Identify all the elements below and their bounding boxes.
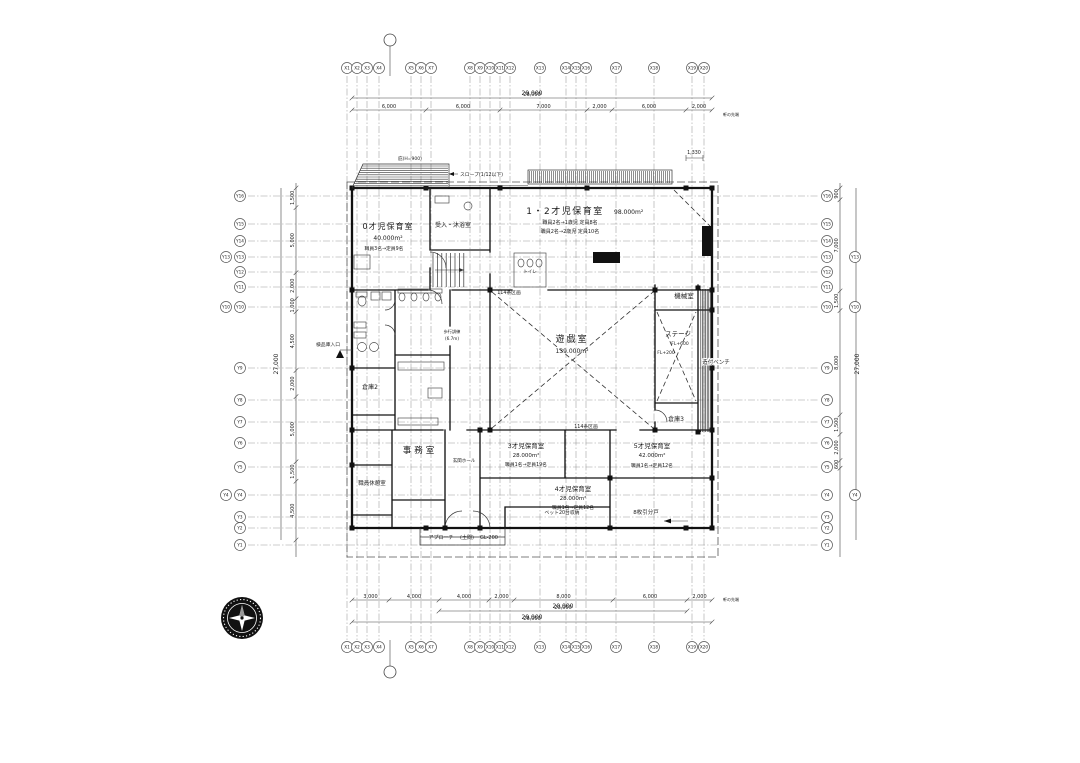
bath-counter: [435, 196, 449, 203]
interior-walls: [352, 188, 712, 528]
grid-bubble-label: Y8: [823, 398, 830, 403]
toilet: [358, 296, 366, 306]
column: [478, 526, 483, 531]
grid-bubble-label: Y14: [235, 239, 244, 244]
grid-bubble: X9: [475, 63, 486, 74]
grid-bubble: X6: [416, 63, 427, 74]
column: [488, 288, 493, 293]
grid-bubble-label: X16: [582, 66, 591, 71]
grid-bubble-label: X14: [562, 66, 571, 71]
grid-bubble: Y7: [822, 417, 833, 428]
grid-bubble-label: Y10: [235, 305, 244, 310]
grid-bubble-label: Y13: [235, 255, 244, 260]
grid-bubble-label: Y1: [823, 543, 830, 548]
grid-bubble-label: X18: [650, 645, 659, 650]
grid-bubble: Y13: [221, 252, 232, 263]
doma-label: (土間): [460, 534, 474, 541]
grid-bubble: X10: [485, 63, 496, 74]
grid-bubble-label: Y2: [236, 526, 243, 531]
grid-bubble: X5: [406, 63, 417, 74]
slide-door-arrow: [664, 519, 688, 524]
stair-arrow-head: [459, 268, 464, 272]
grid-bubble-label: Y3: [823, 515, 830, 520]
grid-bubble: Y2: [822, 523, 833, 534]
grid-bubble-label: Y10: [822, 305, 831, 310]
dim-text: 2,000: [494, 594, 508, 600]
grid-bubble: X20: [699, 63, 710, 74]
eaves-note-top: 軒の先端: [723, 111, 739, 117]
slope-arrow: [449, 172, 458, 176]
room-label-toilet: トイレ: [523, 270, 537, 275]
grid-bubble: X1: [342, 642, 353, 653]
fire-compartment-label-bottom: 114条区画: [574, 423, 598, 430]
grid-bubble: Y8: [235, 395, 246, 406]
room-area-nursery12: 98.000m²: [614, 209, 644, 216]
grid-bubble: X11: [495, 63, 506, 74]
grid-bubble: Y1: [235, 540, 246, 551]
bed-storage-label: ベット20台収納: [545, 509, 580, 516]
grid-bubble: X13: [535, 63, 546, 74]
grid-bubble-label: Y4: [236, 493, 243, 498]
grid-bubble-label: X7: [428, 645, 434, 650]
dim-text: 600: [834, 460, 840, 470]
grid-bubble-label: X17: [612, 66, 621, 71]
dim-1330: 1,330: [686, 150, 703, 161]
dim-bottom-subtotal: 20,000: [553, 603, 574, 610]
label-built-in-bench: 造付ベンチ: [702, 358, 730, 366]
ramp-outline: [352, 164, 449, 188]
grid-bubble: Y14: [235, 236, 246, 247]
grid-bubble-label: X2: [354, 645, 360, 650]
grid-bubble-label: X10: [486, 645, 495, 650]
room-label-storage3: 倉庫3: [668, 415, 684, 423]
kitchen-island: [428, 388, 442, 398]
room-area-nursery5: 42.000m²: [639, 452, 666, 459]
grid-bubble-label: X3: [364, 66, 370, 71]
grid-bubble-label: Y13: [221, 255, 230, 260]
grid-bubble: X1: [342, 63, 353, 74]
room-staff2-nursery12: 職員2名→2歳児 定員10名: [541, 228, 600, 235]
grid-bubble: Y10: [221, 302, 232, 313]
grid-bubble-label: Y6: [236, 441, 243, 446]
eaves-note-bottom: 軒の先端: [723, 596, 739, 602]
dim-top-total: 29,000: [522, 90, 543, 97]
grid-bubble-label: Y13: [822, 255, 831, 260]
grid-bubble-label: X12: [506, 66, 515, 71]
grid-bubble-label: X2: [354, 66, 360, 71]
grid-bubble: X2: [352, 63, 363, 74]
section-marker-circle: [384, 666, 396, 678]
dim-text: 900: [834, 189, 840, 199]
grid-bubble: Y7: [235, 417, 246, 428]
child-toilet: [527, 259, 533, 267]
grid-bubble-label: Y7: [236, 420, 243, 425]
grid-bubble-label: X11: [496, 645, 505, 650]
section-marker-top: [384, 34, 396, 76]
compass-center: [240, 616, 243, 619]
drawing-sheet: 29,0006,0006,0007,0002,0006,0002,0003,00…: [0, 0, 1080, 763]
grid-bubble-label: X20: [700, 66, 709, 71]
grid-bubble-label: X6: [418, 645, 424, 650]
grid-bubble: X18: [649, 63, 660, 74]
grid-bubble-label: Y4: [222, 493, 229, 498]
grid-bubble-label: X17: [612, 645, 621, 650]
grid-bubble-label: Y10: [221, 305, 230, 310]
grid-bubble: Y15: [235, 219, 246, 230]
structural-columns: [350, 186, 715, 531]
section-marker-bottom: [384, 640, 396, 678]
grid-bubble-label: X4: [376, 66, 382, 71]
grid-bubble-label: X15: [572, 645, 581, 650]
arrow-head: [336, 350, 344, 358]
grid-bubble: Y13: [822, 252, 833, 263]
basin: [358, 343, 367, 352]
grid-bubble: X9: [475, 642, 486, 653]
grid-bubble: Y11: [822, 282, 833, 293]
column: [350, 366, 355, 371]
grid-bubble-label: Y14: [822, 239, 831, 244]
grid-bubble: Y4: [221, 490, 232, 501]
exterior-wall: [352, 188, 712, 528]
grid-bubble: X7: [426, 642, 437, 653]
grid-bubbles: X1X1X2X2X3X3X4X4X5X5X6X6X7X7X8X8X9X9X10X…: [221, 63, 861, 653]
room-label-entrance-hall: 玄関ホール: [453, 457, 476, 464]
room-label-stage: ステージ: [665, 330, 691, 338]
dim-text: 1,500: [290, 464, 296, 478]
laundry: [382, 292, 391, 300]
grid-bubble-label: X13: [536, 66, 545, 71]
room-label-nursery5: 5才児保育室: [634, 441, 671, 450]
grid-bubble-label: X20: [700, 645, 709, 650]
grid-bubble-label: X18: [650, 66, 659, 71]
grid-bubble: Y10: [235, 302, 246, 313]
column: [443, 526, 448, 531]
dim-text: 3,000: [363, 594, 377, 600]
grid-bubble-label: Y4: [823, 493, 830, 498]
grid-bubble-label: Y15: [822, 222, 831, 227]
child-toilet: [518, 259, 524, 267]
column: [653, 428, 658, 433]
dim-text: 1,500: [290, 191, 296, 205]
canopy-label: 庇(H=900): [398, 155, 422, 162]
grid-bubble-label: X7: [428, 66, 434, 71]
floor-plan-drawing: 29,0006,0006,0007,0002,0006,0002,0003,00…: [0, 0, 1080, 763]
walking-training-label: 歩行訓練: [444, 328, 462, 335]
grid-bubble-label: Y9: [236, 366, 243, 371]
grid-bubble-label: Y5: [823, 465, 830, 470]
grid-bubble: X17: [611, 63, 622, 74]
sink: [354, 332, 366, 338]
grid-lines: [248, 76, 818, 640]
grid-bubble: X14: [561, 63, 572, 74]
grid-bubble-label: X5: [408, 66, 414, 71]
room-label-nursery3: 3才児保育室: [508, 441, 545, 450]
dim-right-total: 27,000: [854, 353, 861, 374]
grid-bubble: X4: [374, 642, 385, 653]
grid-bubble: X8: [465, 63, 476, 74]
grid-bubble-label: Y12: [235, 270, 244, 275]
grid-bubble: X19: [687, 642, 698, 653]
grid-bubble: X12: [505, 63, 516, 74]
room-staff-nursery5: 職員1名→定員12名: [631, 462, 673, 469]
arrow-head: [449, 172, 454, 176]
grid-bubble: Y10: [850, 302, 861, 313]
cross-braces: [492, 190, 710, 428]
room-staff1-nursery12: 職員2名→1歳児 定員8名: [542, 219, 597, 226]
dim-text: 7,000: [536, 104, 550, 110]
grid-bubble: Y2: [235, 523, 246, 534]
grid-bubble-label: X9: [477, 66, 483, 71]
grid-bubble-label: X3: [364, 645, 370, 650]
grid-bubble: X16: [581, 63, 592, 74]
dim-text: 1,500: [834, 294, 840, 308]
dim-text: 8,000: [556, 594, 570, 600]
dim-text: 2,000: [692, 104, 706, 110]
room-label-office: 事務室: [403, 445, 438, 456]
grid-bubble: Y10: [822, 302, 833, 313]
grid-bubble: X4: [374, 63, 385, 74]
child-toilet: [411, 293, 417, 301]
dim-bottom-total: 29,000: [522, 614, 543, 621]
child-toilet: [423, 293, 429, 301]
wall-block: [702, 226, 712, 256]
grid-bubble: X16: [581, 642, 592, 653]
grid-bubble-label: Y3: [236, 515, 243, 520]
grid-bubble: X6: [416, 642, 427, 653]
dim-text: 7,000: [834, 238, 840, 252]
grid-bubble: X14: [561, 642, 572, 653]
column: [350, 463, 355, 468]
grid-bubble-label: Y13: [850, 255, 859, 260]
ground-level-label: GL-200: [480, 535, 498, 541]
column: [498, 186, 503, 191]
grid-bubble: X8: [465, 642, 476, 653]
room-label-playroom: 遊戯室: [555, 333, 588, 345]
north-compass: [221, 597, 263, 639]
dim-text: 6,000: [642, 104, 656, 110]
column: [350, 288, 355, 293]
grid-bubble: Y8: [822, 395, 833, 406]
column: [350, 526, 355, 531]
slope-label: スロープ(1/12以下): [460, 172, 503, 178]
grid-bubble-label: X13: [536, 645, 545, 650]
room-label-nursery12: 1・2才児保育室: [526, 205, 603, 217]
grid-bubble: X18: [649, 642, 660, 653]
sliding-door-label: 8枚引分戸: [633, 508, 659, 516]
grid-bubble: Y16: [822, 191, 833, 202]
column: [696, 286, 701, 291]
fire-compartment-label-top: 114条区画: [497, 289, 521, 296]
grid-bubble-label: Y10: [850, 305, 859, 310]
room-area-nursery4: 28.000m²: [560, 495, 587, 502]
kenpin-arrow: [336, 350, 352, 358]
goods-entrance-label: 検品庫入口: [316, 341, 340, 348]
hatched-areas: [352, 164, 710, 432]
grid-bubble-label: Y1: [236, 543, 243, 548]
room-staff-nursery4: 職員1名→定員12名: [552, 504, 594, 511]
grid-bubble: Y13: [235, 252, 246, 263]
dim-text: 1,500: [834, 417, 840, 431]
grid-bubble-label: Y16: [822, 194, 831, 199]
dim-text: 5,000: [290, 422, 296, 436]
grid-bubble-label: X16: [582, 645, 591, 650]
column: [710, 526, 715, 531]
dim-text: 8,000: [834, 356, 840, 370]
column: [684, 186, 689, 191]
grid-bubble: Y11: [235, 282, 246, 293]
grid-bubble: Y5: [235, 462, 246, 473]
column: [608, 526, 613, 531]
grid-bubble-label: Y2: [823, 526, 830, 531]
column: [350, 428, 355, 433]
column: [585, 186, 590, 191]
room-staff-infant0: 職員3名→定員9名: [365, 245, 404, 252]
grid-bubble-label: Y5: [236, 465, 243, 470]
grid-bubble: Y6: [235, 438, 246, 449]
room-staff-nursery3: 職員1名→定員19名: [505, 461, 547, 468]
grid-bubble: Y1: [822, 540, 833, 551]
grid-bubble: Y6: [822, 438, 833, 449]
grid-bubble-label: Y4: [851, 493, 858, 498]
grid-bubble: Y4: [235, 490, 246, 501]
dim-text: 6,000: [382, 104, 396, 110]
grid-bubble: X15: [571, 642, 582, 653]
room-label-machine: 機械室: [674, 291, 694, 300]
grid-bubble-label: X1: [344, 66, 350, 71]
grid-bubble-label: Y7: [823, 420, 830, 425]
grid-bubble-label: Y15: [235, 222, 244, 227]
grid-bubble-label: X19: [688, 645, 697, 650]
grid-bubble: X5: [406, 642, 417, 653]
laundry: [371, 292, 380, 300]
dim-text: 1,000: [290, 298, 296, 312]
grid-bubble: X11: [495, 642, 506, 653]
grid-bubble-label: X12: [506, 645, 515, 650]
counter-block: [593, 252, 620, 263]
grid-bubble: Y9: [235, 363, 246, 374]
column: [684, 526, 689, 531]
stage-step-level: FL+200: [657, 350, 675, 356]
column: [696, 430, 701, 435]
room-label-infant0: 0才児保育室: [362, 221, 413, 231]
grid-bubble: Y9: [822, 363, 833, 374]
baby-bath: [464, 202, 472, 210]
column: [424, 526, 429, 531]
grid-bubble-label: X4: [376, 645, 382, 650]
dim-text: 4,000: [407, 594, 421, 600]
column: [710, 186, 715, 191]
grid-bubble: X17: [611, 642, 622, 653]
dim-text: 2,000: [834, 440, 840, 454]
stairs: [433, 253, 464, 287]
basin: [370, 343, 379, 352]
dim-text: 5,000: [290, 233, 296, 247]
grid-bubble-label: Y16: [235, 194, 244, 199]
dim-text: 4,500: [290, 503, 296, 517]
section-marker-circle: [384, 34, 396, 46]
arrow-head: [664, 519, 671, 524]
room-area-infant0: 40.000m²: [373, 235, 403, 242]
room-label-storage2: 倉庫2: [362, 383, 378, 391]
dim-text: 6,000: [643, 594, 657, 600]
dim-text: 2,000: [290, 376, 296, 390]
grid-bubble: Y5: [822, 462, 833, 473]
grid-bubble-label: Y6: [823, 441, 830, 446]
walking-training-length: (6.7m): [445, 336, 459, 341]
room-area-nursery3: 28.000m²: [513, 452, 540, 459]
eaves-outline: [347, 182, 718, 557]
grid-bubble: X12: [505, 642, 516, 653]
column: [710, 476, 715, 481]
room-label-nursery4: 4才児保育室: [555, 484, 592, 493]
dim-text: 4,000: [457, 594, 471, 600]
grid-bubble: Y3: [235, 512, 246, 523]
grid-bubble-label: X9: [477, 645, 483, 650]
grid-bubble: X13: [535, 642, 546, 653]
dim-text: 4,500: [290, 334, 296, 348]
grid-bubble-label: X5: [408, 645, 414, 650]
kitchen-counter: [398, 418, 438, 425]
grid-bubble: X7: [426, 63, 437, 74]
grid-bubble: Y14: [822, 236, 833, 247]
approach-label: アプローチ: [428, 535, 453, 541]
dim-left-total: 27,000: [273, 353, 280, 374]
grid-bubble-label: Y9: [823, 366, 830, 371]
grid-bubble-label: X1: [344, 645, 350, 650]
grid-bubble: X15: [571, 63, 582, 74]
column: [653, 288, 658, 293]
dim-text: 6,000: [456, 104, 470, 110]
grid-bubble: Y16: [235, 191, 246, 202]
child-toilet: [399, 293, 405, 301]
grid-bubble: X2: [352, 642, 363, 653]
grid-bubble: Y4: [850, 490, 861, 501]
grid-bubble-label: X8: [467, 66, 473, 71]
grid-bubble-label: Y11: [822, 285, 831, 290]
grid-bubble-label: X19: [688, 66, 697, 71]
column: [478, 428, 483, 433]
stage-floor-level: FL+600: [671, 341, 689, 347]
dim-text: 2,000: [692, 594, 706, 600]
room-area-playroom: 139.000m²: [555, 348, 589, 355]
grid-bubble-label: X11: [496, 66, 505, 71]
grid-bubble-label: Y12: [822, 270, 831, 275]
column: [608, 476, 613, 481]
room-label-staff-rest: 職員休憩室: [358, 479, 386, 487]
grid-bubble: X10: [485, 642, 496, 653]
grid-bubble: Y12: [235, 267, 246, 278]
grid-bubble: Y4: [822, 490, 833, 501]
grid-bubble: Y3: [822, 512, 833, 523]
grid-bubble-label: X6: [418, 66, 424, 71]
grid-bubble: X20: [699, 642, 710, 653]
grid-bubble-label: X14: [562, 645, 571, 650]
grid-bubble: X3: [362, 642, 373, 653]
child-toilet: [536, 259, 542, 267]
grid-bubble-label: X15: [572, 66, 581, 71]
grid-bubble-label: Y8: [236, 398, 243, 403]
room-label-reception-bath: 受入・沐浴室: [435, 221, 471, 229]
dim-text: 2,000: [290, 279, 296, 293]
grid-bubble-label: X10: [486, 66, 495, 71]
column: [488, 428, 493, 433]
grid-bubble: X19: [687, 63, 698, 74]
sink: [354, 322, 366, 328]
grid-bubble-label: Y11: [235, 285, 244, 290]
grid-bubble: Y13: [850, 252, 861, 263]
dim-text: 1,330: [687, 150, 701, 156]
grid-bubble: Y12: [822, 267, 833, 278]
